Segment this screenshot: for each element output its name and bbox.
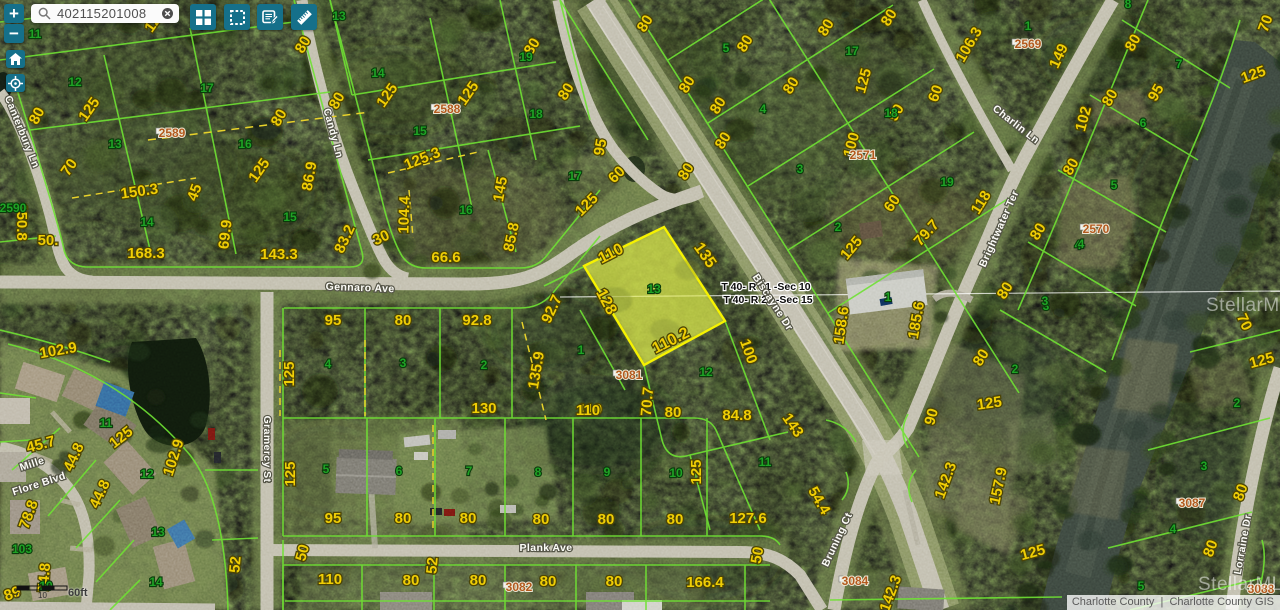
svg-text:80: 80 xyxy=(470,572,487,589)
svg-text:125: 125 xyxy=(976,393,1003,413)
svg-text:125: 125 xyxy=(688,459,705,484)
svg-text:5: 5 xyxy=(1138,579,1145,593)
svg-text:5: 5 xyxy=(323,462,330,476)
svg-text:130: 130 xyxy=(471,400,496,417)
svg-text:95: 95 xyxy=(325,510,342,527)
svg-text:Plank Ave: Plank Ave xyxy=(519,542,572,554)
svg-text:70.7: 70.7 xyxy=(638,386,657,417)
svg-text:13: 13 xyxy=(332,9,346,23)
svg-text:3: 3 xyxy=(1042,294,1049,308)
svg-text:50.: 50. xyxy=(38,232,59,249)
svg-text:17: 17 xyxy=(200,81,214,95)
svg-text:2: 2 xyxy=(1234,396,1241,410)
svg-text:104.4: 104.4 xyxy=(395,195,413,234)
svg-text:2570: 2570 xyxy=(1083,222,1110,236)
svg-text:92.8: 92.8 xyxy=(462,312,491,329)
svg-text:5: 5 xyxy=(1111,178,1118,192)
svg-text:125: 125 xyxy=(282,461,299,486)
svg-text:80: 80 xyxy=(395,312,412,329)
svg-text:2: 2 xyxy=(835,220,842,234)
svg-text:80: 80 xyxy=(403,572,420,589)
svg-text:18: 18 xyxy=(884,106,898,120)
svg-text:3081: 3081 xyxy=(616,368,643,382)
svg-text:168.3: 168.3 xyxy=(127,245,165,262)
svg-text:4: 4 xyxy=(325,357,332,371)
svg-text:166.4: 166.4 xyxy=(686,574,724,591)
svg-text:Gramercy St: Gramercy St xyxy=(261,416,273,483)
svg-text:1: 1 xyxy=(885,290,892,304)
svg-text:2588: 2588 xyxy=(434,102,461,116)
svg-text:12: 12 xyxy=(699,365,713,379)
svg-text:14: 14 xyxy=(140,215,154,229)
svg-text:13: 13 xyxy=(151,525,165,539)
svg-text:80: 80 xyxy=(665,404,682,421)
svg-text:80: 80 xyxy=(606,573,623,590)
svg-text:18: 18 xyxy=(529,107,543,121)
svg-text:9: 9 xyxy=(604,465,611,479)
svg-text:7: 7 xyxy=(1176,57,1183,71)
svg-text:4: 4 xyxy=(1170,522,1177,536)
svg-text:80: 80 xyxy=(598,511,615,528)
svg-text:80: 80 xyxy=(667,511,684,528)
svg-text:2569: 2569 xyxy=(1015,37,1042,51)
svg-text:80: 80 xyxy=(540,573,557,590)
svg-text:8: 8 xyxy=(1125,0,1132,11)
svg-text:52: 52 xyxy=(226,556,244,574)
svg-text:7: 7 xyxy=(466,464,473,478)
svg-text:10: 10 xyxy=(38,591,47,600)
svg-text:110: 110 xyxy=(318,571,342,588)
svg-text:52: 52 xyxy=(423,557,441,575)
svg-text:StellarMLS: StellarMLS xyxy=(1206,295,1280,316)
svg-text:66.6: 66.6 xyxy=(431,249,460,266)
svg-text:1: 1 xyxy=(578,343,585,357)
svg-text:11: 11 xyxy=(100,416,113,430)
svg-text:2589: 2589 xyxy=(159,126,186,140)
svg-text:95: 95 xyxy=(325,312,342,329)
svg-text:14: 14 xyxy=(149,575,163,589)
svg-text:103: 103 xyxy=(12,542,32,556)
svg-text:19: 19 xyxy=(519,50,533,64)
svg-text:6: 6 xyxy=(1140,116,1147,130)
svg-text:80: 80 xyxy=(395,510,412,527)
svg-text:16: 16 xyxy=(459,203,473,217)
svg-text:3: 3 xyxy=(400,356,407,370)
svg-text:12: 12 xyxy=(68,75,82,89)
svg-text:110: 110 xyxy=(576,402,600,419)
svg-text:127.6: 127.6 xyxy=(729,510,767,527)
svg-text:17: 17 xyxy=(845,44,859,58)
svg-text:2: 2 xyxy=(481,358,488,372)
svg-text:2590: 2590 xyxy=(0,201,27,215)
svg-text:16: 16 xyxy=(238,137,252,151)
svg-text:6: 6 xyxy=(396,464,403,478)
svg-text:StellarMLS: StellarMLS xyxy=(1198,574,1280,595)
svg-text:14: 14 xyxy=(371,66,385,80)
svg-text:Gennaro Ave: Gennaro Ave xyxy=(325,281,394,295)
svg-text:1: 1 xyxy=(1025,19,1032,33)
svg-text:3084: 3084 xyxy=(842,574,869,588)
svg-text:8: 8 xyxy=(535,465,542,479)
svg-text:17: 17 xyxy=(568,169,582,183)
svg-text:3: 3 xyxy=(797,162,804,176)
svg-text:84.8: 84.8 xyxy=(722,407,751,424)
svg-text:125: 125 xyxy=(281,361,298,386)
svg-text:80: 80 xyxy=(533,511,550,528)
svg-text:4: 4 xyxy=(760,102,767,116)
svg-text:11: 11 xyxy=(759,455,772,469)
svg-text:0: 0 xyxy=(16,591,21,600)
svg-text:80: 80 xyxy=(460,510,477,527)
svg-text:2: 2 xyxy=(1012,362,1019,376)
svg-text:3082: 3082 xyxy=(506,580,533,594)
svg-text:3: 3 xyxy=(1201,459,1208,473)
svg-text:13: 13 xyxy=(108,137,122,151)
svg-text:13: 13 xyxy=(647,282,661,296)
svg-text:69.9: 69.9 xyxy=(215,219,235,250)
svg-text:143.3: 143.3 xyxy=(260,246,298,263)
svg-text:19: 19 xyxy=(940,175,954,189)
svg-text:5: 5 xyxy=(723,41,730,55)
svg-text:2571: 2571 xyxy=(850,148,877,162)
svg-text:11: 11 xyxy=(29,27,42,41)
svg-text:4: 4 xyxy=(1078,237,1085,251)
svg-text:95: 95 xyxy=(591,138,611,157)
svg-text:3087: 3087 xyxy=(1179,496,1206,510)
svg-text:15: 15 xyxy=(413,124,427,138)
svg-text:12: 12 xyxy=(140,467,154,481)
svg-text:10: 10 xyxy=(669,466,683,480)
svg-text:50: 50 xyxy=(748,546,768,565)
svg-text:15: 15 xyxy=(283,210,297,224)
